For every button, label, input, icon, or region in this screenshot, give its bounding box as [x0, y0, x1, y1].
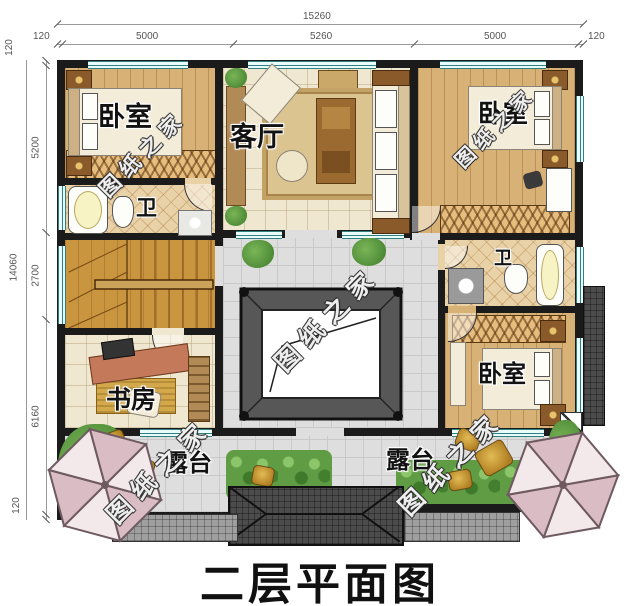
nightstand [66, 70, 92, 90]
dim-line-top-total [57, 24, 583, 25]
dim-left-total: 14060 [8, 254, 19, 282]
plan-title: 二层平面图 [0, 548, 640, 606]
desk [546, 168, 572, 212]
window [440, 61, 546, 69]
sofa-back [398, 82, 410, 222]
window [236, 231, 282, 239]
floor-plan-canvas: 15260 120 5000 5260 5000 120 14060 120 5… [0, 0, 640, 606]
sofa-cushion [375, 174, 397, 212]
porch-roof-ridges [228, 486, 400, 542]
parasol [504, 426, 622, 544]
bathtub-basin [541, 250, 559, 300]
pillow [82, 123, 98, 150]
nightstand [540, 320, 566, 342]
terrace-flower [250, 464, 275, 488]
room-label-bathroom-right: 卫 [494, 244, 512, 270]
window [58, 186, 66, 230]
nightstand [66, 156, 92, 176]
room-label-bedroom-bottom-right: 卧室 [478, 354, 526, 389]
bed-headboard [552, 86, 562, 150]
nightstand [542, 150, 568, 168]
door-opening [438, 244, 445, 270]
sofa-cushion [375, 90, 397, 128]
pillow [534, 352, 550, 377]
room-label-living-room: 客厅 [230, 115, 284, 154]
door-opening [215, 246, 223, 286]
dim-line-top-segments [57, 44, 583, 45]
end-table [372, 218, 410, 234]
paving [404, 512, 520, 542]
door-opening [412, 233, 440, 240]
end-table [372, 70, 410, 86]
bench [450, 342, 466, 406]
window [88, 61, 188, 69]
round-table [276, 150, 308, 182]
console-table [318, 70, 358, 90]
shower [178, 210, 212, 236]
stairs [65, 240, 215, 332]
pillow [534, 380, 550, 405]
bed-headboard [552, 348, 562, 410]
door-opening [296, 428, 344, 436]
dim-top-seg1: 5000 [136, 31, 158, 42]
dim-left-seg1: 5200 [31, 136, 42, 158]
wall [57, 328, 223, 335]
window [58, 246, 66, 324]
window [576, 96, 584, 162]
dim-top-seg3: 5000 [484, 31, 506, 42]
sofa-cushion [375, 132, 397, 170]
door-opening [448, 306, 476, 313]
dim-top-seg2: 5260 [310, 31, 332, 42]
dim-top-total: 15260 [303, 11, 331, 22]
dim-top-edge-left: 120 [33, 31, 50, 42]
dim-left-edge-bottom: 120 [11, 497, 22, 514]
bed-headboard [68, 88, 80, 156]
dim-top-edge-right: 120 [588, 31, 605, 42]
door-opening [152, 328, 184, 335]
pillow [82, 93, 98, 120]
wall [215, 60, 223, 428]
door-opening [285, 230, 337, 238]
bathtub-basin [74, 191, 102, 229]
dim-left-edge-top: 120 [4, 39, 15, 56]
coffee-table [316, 98, 356, 184]
room-label-bathroom-left: 卫 [136, 192, 157, 222]
room-label-study: 书房 [106, 380, 156, 416]
pillow [534, 119, 550, 145]
dim-left-seg3: 6160 [31, 405, 42, 427]
dim-line-left-total [26, 60, 27, 520]
dim-left-seg2: 2700 [31, 264, 42, 286]
shower [448, 268, 484, 304]
side-roof [583, 286, 605, 426]
